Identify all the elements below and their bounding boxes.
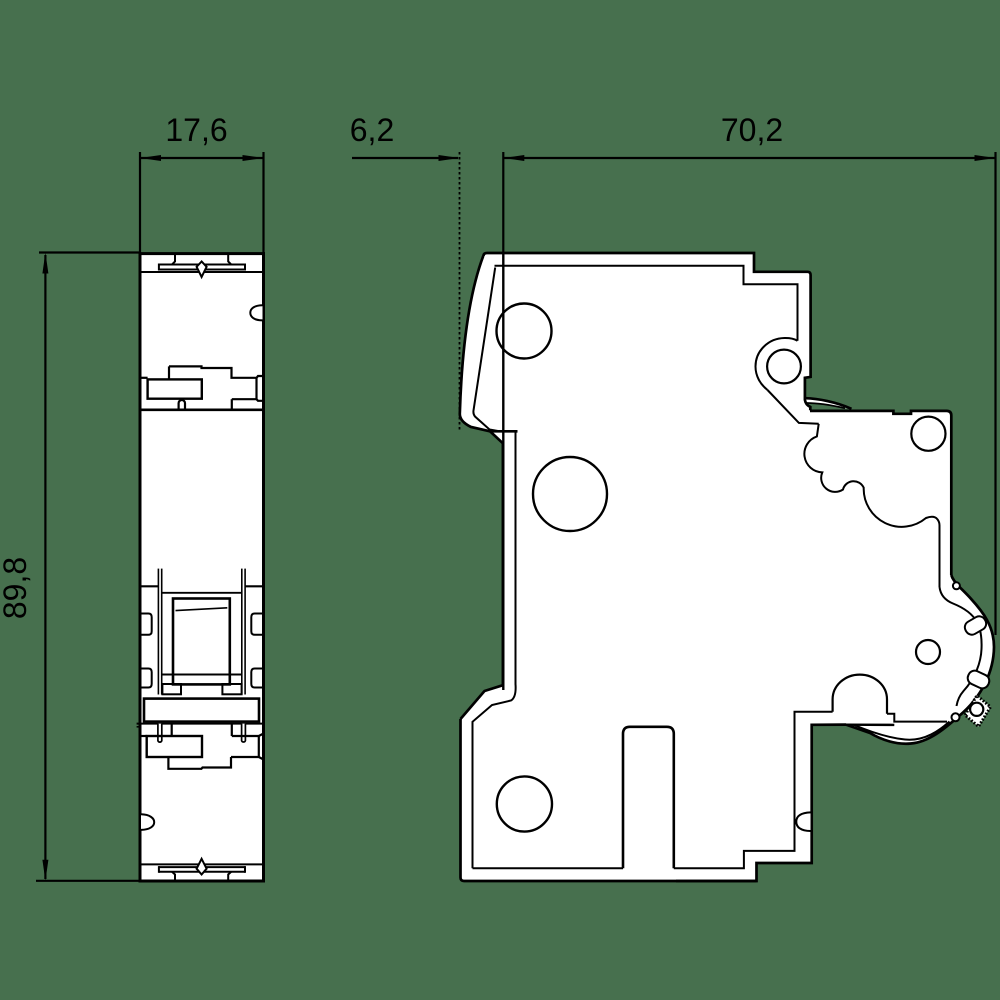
svg-text:17,6: 17,6 <box>165 112 227 148</box>
svg-text:70,2: 70,2 <box>721 112 783 148</box>
svg-text:89,8: 89,8 <box>0 557 33 619</box>
svg-text:6,2: 6,2 <box>350 112 394 148</box>
